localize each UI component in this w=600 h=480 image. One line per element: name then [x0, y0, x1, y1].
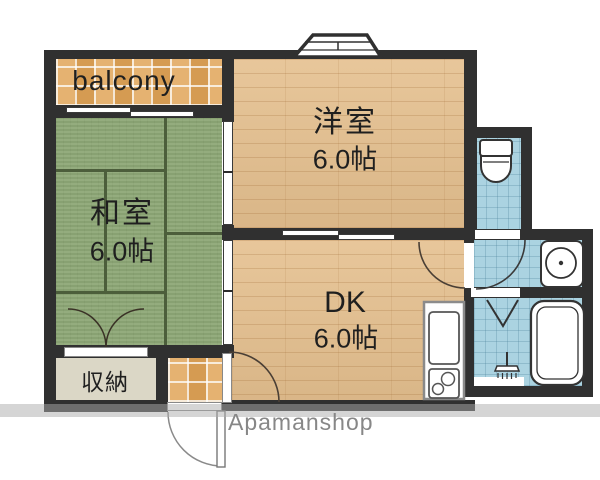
toilet-door-arc [476, 240, 525, 289]
shower-icon [495, 352, 519, 379]
japanese-room-label: 和室 [90, 188, 154, 232]
watermark-text: Apamanshop [228, 409, 374, 436]
toilet-icon [480, 140, 512, 182]
folding-door-icon [487, 300, 518, 326]
western-room-label: 洋室 [313, 97, 377, 141]
dk-label: DK [324, 286, 366, 320]
front-door [168, 411, 225, 467]
western-room-size: 6.0帖 [313, 138, 378, 177]
dk-size: 6.0帖 [314, 317, 379, 356]
balcony-label: balcony [72, 65, 176, 97]
bathtub-icon [531, 301, 584, 385]
washroom-door-arc [419, 242, 465, 288]
kitchen-sink-icon [429, 312, 459, 364]
storage-label: 収納 [81, 363, 129, 397]
bay-window-icon [294, 35, 381, 57]
floor-plan: balcony 和室 6.0帖 洋室 6.0帖 DK 6.0帖 収納 Apama… [0, 0, 600, 480]
closet-door-arcs [68, 309, 144, 347]
japanese-room-size: 6.0帖 [90, 230, 155, 269]
wash-basin-icon [541, 241, 583, 287]
kitchen-unit [424, 302, 464, 399]
entrance-hall-door-arc [229, 352, 279, 402]
